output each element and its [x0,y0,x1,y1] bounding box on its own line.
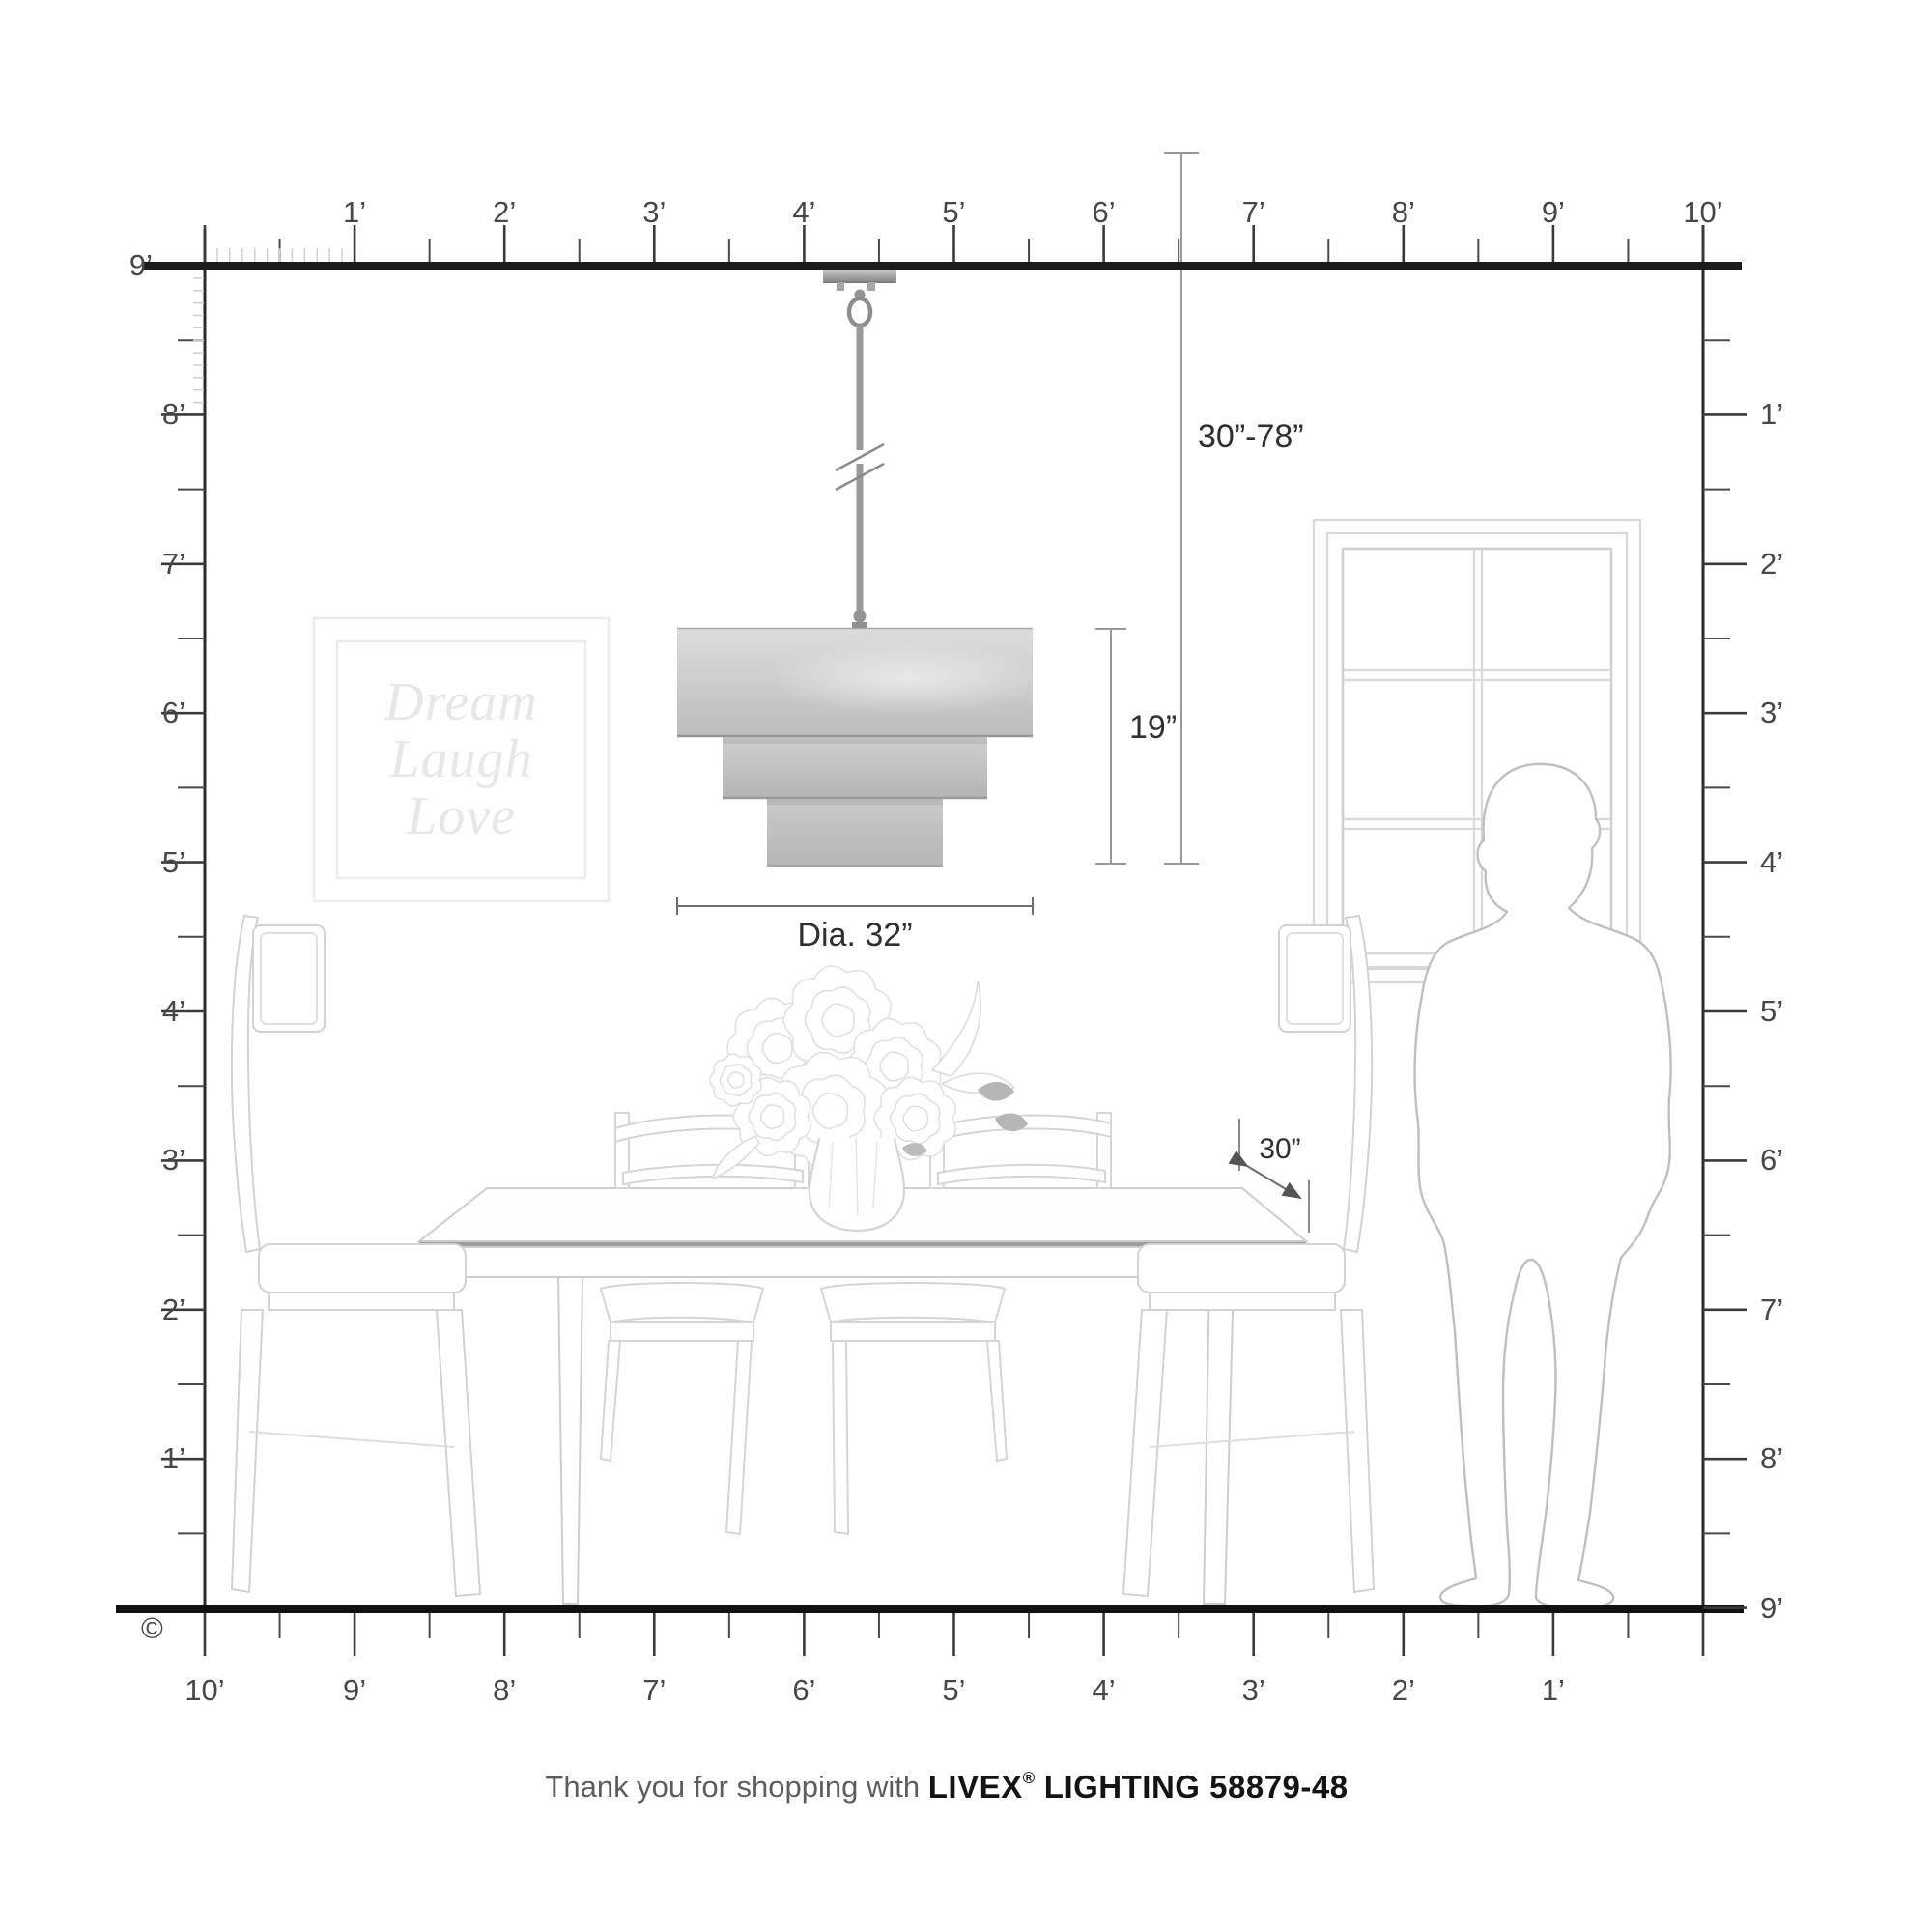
rod-lower [857,464,864,611]
window [1314,520,1640,982]
ruler-label-right-1’: 1’ [1760,397,1847,432]
ruler-label-left-5’: 5’ [108,845,185,880]
ruler-label-right-3’: 3’ [1760,696,1847,730]
flower-bloom [822,1004,854,1037]
drum-shade [677,628,1053,867]
ruler-label-left-2’: 2’ [108,1293,185,1327]
footer-prefix: Thank you for shopping with [545,1770,927,1804]
flower-bloom [761,1105,784,1128]
ruler-label-left-9: 9’ [75,248,153,283]
ruler-label-bottom-4’: 4’ [1061,1673,1148,1708]
left-chair [232,916,480,1596]
hang-ring [849,298,870,326]
ruler-label-right-4’: 4’ [1760,845,1847,880]
ruler-label-left-1’: 1’ [108,1441,185,1476]
ruler-label-top-8’: 8’ [1360,195,1447,230]
ceiling-ruler-bar [143,262,1742,270]
ruler-label-left-7’: 7’ [108,547,185,582]
person-silhouette [1415,764,1671,1608]
ruler-label-right-6’: 6’ [1760,1143,1847,1178]
leaf [932,981,980,1076]
flower-bloom [762,1034,792,1064]
ruler-label-bottom-6’: 6’ [760,1673,847,1708]
rod-upper [857,325,864,450]
ruler-label-right-9’: 9’ [1760,1591,1847,1626]
right-chair [1123,916,1374,1596]
footer-message: Thank you for shopping with LIVEX® LIGHT… [560,1764,1333,1810]
ruler-label-bottom-3’: 3’ [1210,1673,1297,1708]
ruler-label-left-8’: 8’ [108,397,185,432]
footer-brand: LIVEX [928,1769,1023,1805]
chair-seats [601,1283,1007,1534]
wall-art-text: Dream Laugh Love [337,641,585,878]
wall-art-line: Love [407,788,516,845]
table-clearance-label: 30” [1245,1132,1315,1167]
ruler-label-right-7’: 7’ [1760,1293,1847,1327]
ruler-label-top-3’: 3’ [611,195,697,230]
flower-bloom [903,1106,927,1131]
flower-bloom [813,1094,848,1128]
ruler-label-top-5’: 5’ [911,195,998,230]
ruler-label-top-1’: 1’ [311,195,398,230]
copyright-mark: © [141,1611,163,1646]
clearance-arrow [1247,1166,1300,1198]
ruler-label-top-6’: 6’ [1061,195,1148,230]
pendant-light [677,270,1053,867]
ruler-label-top-10’: 10’ [1660,195,1747,230]
flower-bloom [880,1052,908,1081]
wall-art-line: Laugh [389,731,532,788]
ruler-label-right-2’: 2’ [1760,547,1847,582]
ruler-label-left-6’: 6’ [108,696,185,730]
floor-ruler-bar [116,1605,1744,1613]
scale-diagram-page: 1’2’3’4’5’6’7’8’9’10’9’8’7’6’5’4’3’2’1’1… [0,0,1932,1932]
ruler-label-right-8’: 8’ [1760,1441,1847,1476]
ruler-label-right-5’: 5’ [1760,994,1847,1029]
ruler-label-top-2’: 2’ [461,195,548,230]
diagram-artwork [0,0,1932,1932]
ruler-label-top-7’: 7’ [1210,195,1297,230]
ruler-label-top-9’: 9’ [1510,195,1597,230]
hang-height-label: 30”-78” [1198,417,1304,456]
diameter-label: Dia. 32” [749,916,961,954]
ruler-label-top-4’: 4’ [760,195,847,230]
ruler-label-bottom-8’: 8’ [461,1673,548,1708]
ruler-label-bottom-10’: 10’ [161,1673,248,1708]
ruler-label-bottom-7’: 7’ [611,1673,697,1708]
ruler-label-bottom-5’: 5’ [911,1673,998,1708]
ruler-label-left-3’: 3’ [108,1143,185,1178]
ruler-label-bottom-2’: 2’ [1360,1673,1447,1708]
registered-mark: ® [1023,1769,1036,1788]
ruler-label-bottom-1’: 1’ [1510,1673,1597,1708]
canopy [823,270,896,282]
fixture-height-label: 19” [1129,708,1177,747]
ruler-label-bottom-9’: 9’ [311,1673,398,1708]
flower-bloom [728,1072,744,1088]
footer-model: LIGHTING 58879-48 [1035,1769,1348,1805]
ruler-label-left-4’: 4’ [108,994,185,1029]
wall-art-line: Dream [384,674,537,731]
